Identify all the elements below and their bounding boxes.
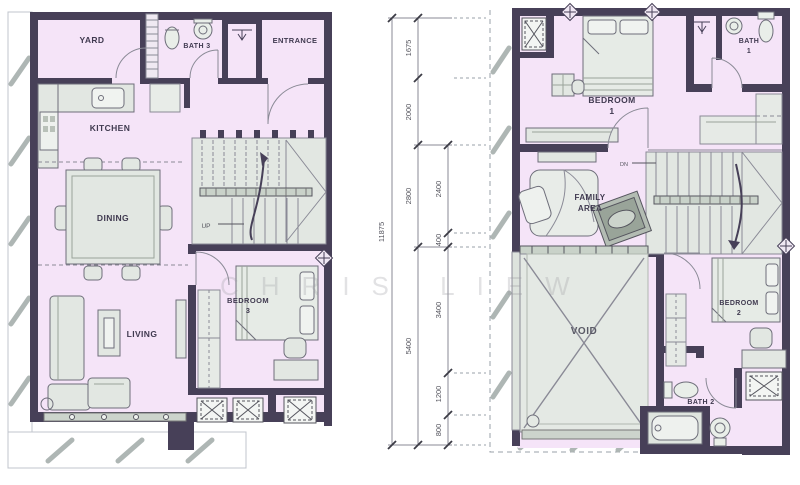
dim-total: 11875 xyxy=(377,222,386,242)
label-yard: YARD xyxy=(80,35,105,45)
armchair xyxy=(88,378,130,408)
desk xyxy=(274,360,318,380)
toilet xyxy=(674,382,698,398)
living-window xyxy=(44,413,186,421)
dimension-column: 11875 1675 2000 2800 5400 2400 400 3400 … xyxy=(377,14,486,449)
console xyxy=(526,128,618,142)
right-plan: DN xyxy=(490,4,794,455)
dim-2000: 2000 xyxy=(404,104,413,121)
label-bath3: BATH 3 xyxy=(183,43,210,50)
bathtub xyxy=(652,416,698,440)
ac-unit xyxy=(233,398,263,422)
tv-console xyxy=(176,300,186,358)
corridor-wardrobe xyxy=(666,294,686,366)
left-plan: UP xyxy=(8,12,332,468)
basin xyxy=(710,418,730,438)
label-bedroom1: BEDROOM xyxy=(588,95,635,105)
label-entrance: ENTRANCE xyxy=(273,36,318,45)
ac-unit xyxy=(284,397,316,423)
ac-unit xyxy=(746,372,782,400)
label-bath1: BATH xyxy=(739,38,760,45)
label-bath1-num: 1 xyxy=(747,48,751,55)
dimension-leaders xyxy=(454,18,486,445)
watermark: CHRIS LIEW xyxy=(220,271,592,301)
dimension-ticks xyxy=(388,14,452,449)
dim-5400: 5400 xyxy=(404,338,413,355)
label-bedroom2-num: 2 xyxy=(737,310,741,317)
label-bedroom1-num: 1 xyxy=(609,106,614,116)
dim-2400: 2400 xyxy=(434,181,443,198)
label-living: LIVING xyxy=(127,329,158,339)
dim-800: 800 xyxy=(434,424,443,437)
desk xyxy=(742,350,786,368)
ac-unit xyxy=(197,398,227,422)
ac-shaft xyxy=(522,18,546,50)
dim-1200: 1200 xyxy=(434,386,443,403)
console xyxy=(538,152,596,162)
label-bedroom3-num: 3 xyxy=(246,306,251,315)
desk-chair xyxy=(572,80,584,94)
stairs-dn-label: DN xyxy=(620,162,628,168)
label-kitchen: KITCHEN xyxy=(90,123,131,133)
label-dining: DINING xyxy=(97,213,129,223)
floor-plan-page: UP xyxy=(0,0,800,485)
ac-units-left xyxy=(197,397,316,423)
desk-chair xyxy=(284,338,306,358)
floor-plan-drawing: UP xyxy=(0,0,800,485)
ottoman xyxy=(48,384,90,410)
dim-2800: 2800 xyxy=(404,188,413,205)
dim-400: 400 xyxy=(434,234,443,247)
label-bath2: BATH 2 xyxy=(687,399,714,406)
stairs-up-label: UP xyxy=(201,223,210,230)
stairs-up: UP xyxy=(192,130,326,244)
dim-3400: 3400 xyxy=(434,302,443,319)
dim-1675: 1675 xyxy=(404,40,413,57)
label-family-area: AREA xyxy=(578,204,602,213)
label-family: FAMILY xyxy=(575,193,606,202)
laundry-rack xyxy=(146,14,158,78)
label-bedroom2: BEDROOM xyxy=(719,300,758,307)
label-void: VOID xyxy=(571,326,597,337)
desk-chair xyxy=(750,328,772,348)
sofa xyxy=(50,296,84,380)
